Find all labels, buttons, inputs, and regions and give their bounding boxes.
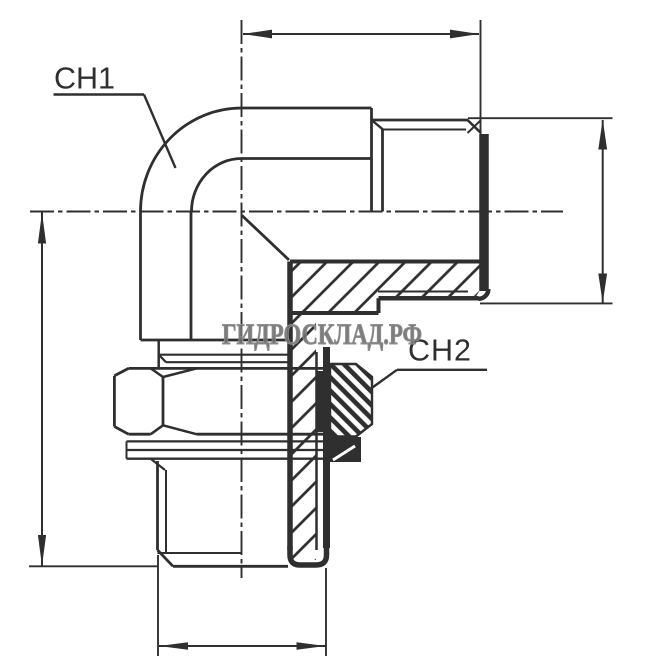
svg-text:CH1: CH1: [54, 62, 115, 96]
svg-text:ГИДРОСКЛАД.РФ: ГИДРОСКЛАД.РФ: [222, 318, 422, 351]
